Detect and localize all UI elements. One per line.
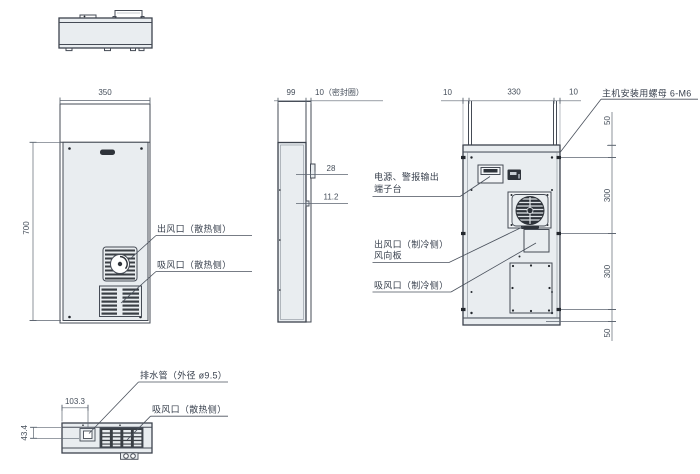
label-drain-pipe: 排水管（外径 ø9.5） — [140, 370, 227, 381]
dim-10-right: 10 — [569, 88, 578, 97]
label-inlet-heat-side: 吸风口（散热侧） — [157, 259, 231, 270]
label-mounting-nut: 主机安装用螺母 6-M6 — [602, 88, 692, 99]
technical-drawing-page: 350 700 出风口（散热侧） 吸风口（散热侧） — [0, 0, 700, 474]
top-view — [59, 11, 152, 51]
dim-103-3: 103.3 — [65, 397, 86, 406]
terminal-block — [478, 165, 503, 183]
drain-outlets — [121, 453, 139, 460]
dim-350: 350 — [98, 88, 112, 97]
label-inlet-cool: 吸风口（制冷侧） — [374, 280, 448, 291]
label-terminal-line2: 端子台 — [374, 183, 402, 194]
cabinet-cooler-dimension-drawing: 350 700 出风口（散热侧） 吸风口（散热侧） — [0, 0, 700, 474]
label-terminal-line1: 电源、警报输出 — [374, 171, 439, 182]
bottom-grille-icon — [100, 428, 143, 448]
mounting-studs — [469, 101, 557, 150]
dim-50-top: 50 — [603, 116, 612, 125]
dim-50-bottom: 50 — [603, 328, 612, 337]
dim-rear-top: 10 330 10 — [441, 88, 581, 145]
front-view: 350 700 出风口（散热侧） 吸风口（散热侧） — [22, 88, 252, 323]
dim-28: 28 — [327, 164, 336, 173]
bottom-view: 103.3 43.4 排水管（外径 ø9.5） 吸风口（散热侧） — [20, 370, 228, 460]
dim-front-height: 700 — [22, 142, 61, 320]
dim-300-lower: 300 — [603, 264, 612, 278]
air-deflector-plate — [521, 226, 539, 230]
dim-11-2: 11.2 — [324, 193, 340, 202]
dim-330: 330 — [507, 88, 521, 97]
dim-10-seal: 10（密封圈） — [315, 87, 364, 97]
dim-10-left: 10 — [443, 88, 452, 97]
side-body — [278, 143, 306, 323]
top-raised-duct — [115, 11, 142, 19]
side-seal-strip — [306, 102, 311, 323]
side-view: 99 10（密封圈） 28 11.2 — [274, 87, 383, 322]
brand-logo — [100, 150, 115, 156]
dim-700: 700 — [22, 221, 31, 235]
dim-front-width: 350 — [60, 88, 150, 104]
front-fan-icon — [103, 247, 137, 281]
dim-99: 99 — [287, 88, 296, 97]
rating-plate — [508, 170, 522, 181]
label-outlet-cool-line1: 出风口（制冷侧） — [374, 239, 448, 250]
drain-pipe-icon — [80, 429, 95, 442]
rear-view: 10 330 10 50 300 300 50 主机安装用螺母 6-M6 — [373, 88, 699, 342]
rear-fan-icon — [508, 192, 551, 229]
label-outlet-heat-side: 出风口（散热侧） — [157, 223, 231, 234]
dim-43-4: 43.4 — [20, 424, 29, 440]
dim-300-upper: 300 — [603, 188, 612, 202]
label-inlet-heat-bottom: 吸风口（散热侧） — [152, 404, 226, 415]
side-top-section — [278, 102, 306, 143]
label-outlet-cool-line2: 风向板 — [374, 250, 402, 261]
side-terminal-bump — [311, 164, 316, 178]
